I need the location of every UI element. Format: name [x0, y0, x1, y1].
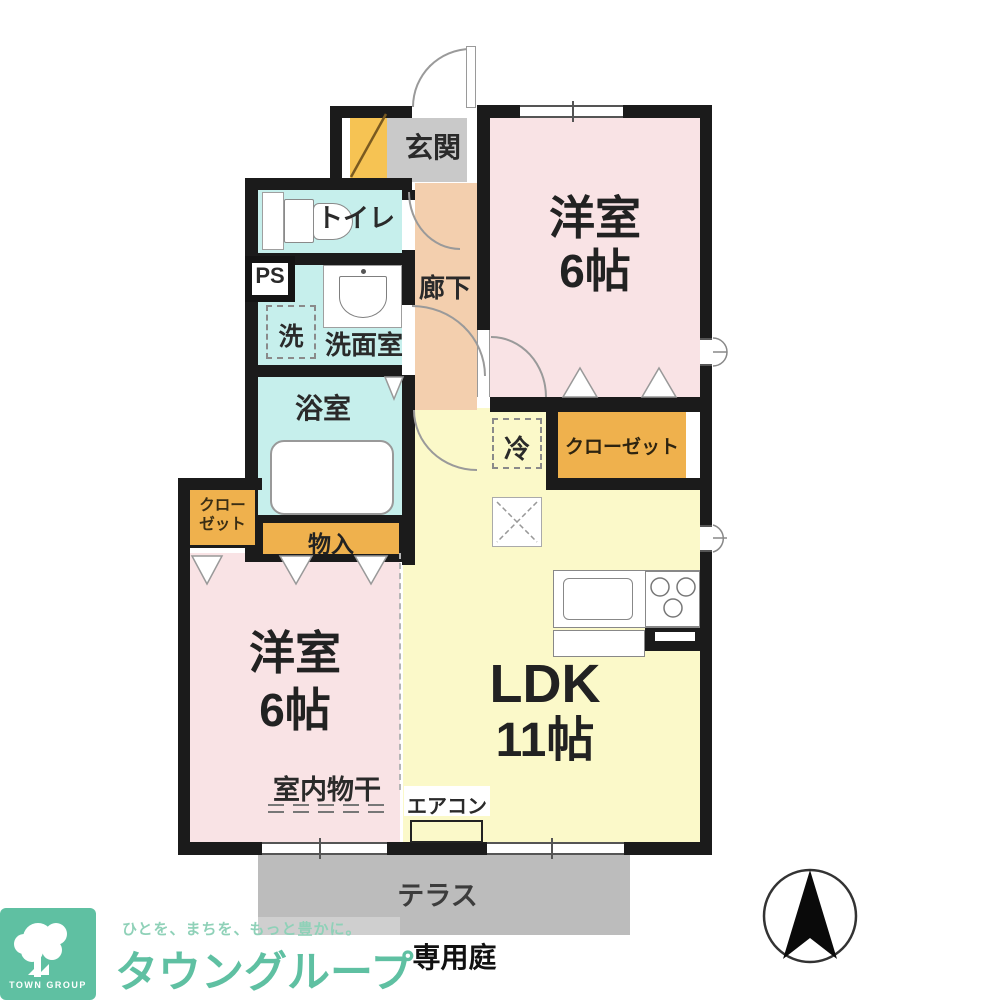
room-tr-label: 洋室 6帖 — [495, 192, 695, 298]
wall — [245, 178, 412, 190]
ldk-label: LDK 11帖 — [430, 655, 660, 769]
room-divider-dashed — [399, 553, 401, 790]
vent-window — [700, 525, 712, 552]
vanity-faucet-dot — [361, 269, 366, 274]
aircon-label: エアコン — [404, 790, 490, 819]
aircon-unit — [410, 820, 483, 843]
logo-square-label: TOWN GROUP — [0, 980, 96, 990]
toilet-tank — [284, 199, 314, 243]
storage-label: 物入 — [263, 525, 399, 559]
wall — [700, 552, 712, 855]
toilet-label: トイレ — [312, 198, 400, 235]
room-tr-size: 6帖 — [495, 244, 695, 298]
vanity-bowl — [339, 276, 387, 318]
window — [262, 842, 387, 855]
ps-label: PS — [245, 263, 295, 289]
wall — [624, 842, 712, 855]
compass-circle — [764, 870, 856, 962]
closet-right-gap — [686, 412, 700, 478]
wall — [700, 366, 712, 525]
wall — [700, 105, 712, 338]
window — [487, 842, 624, 855]
bath-label: 浴室 — [283, 387, 363, 427]
ldk-name: LDK — [430, 655, 660, 713]
genkan-label: 玄関 — [393, 126, 473, 166]
room-bl-size: 6帖 — [195, 681, 395, 739]
room-bl-label: 洋室 6帖 — [195, 625, 395, 739]
terrace-label: テラス — [380, 874, 495, 913]
window-tick — [572, 101, 574, 122]
room-bl-name: 洋室 — [195, 625, 395, 681]
floor-plan: PS 洗 冷 エアコン — [0, 0, 1000, 1000]
ldk-size: 11帖 — [430, 713, 660, 769]
vent-window — [700, 338, 712, 366]
kitchen-sink — [563, 578, 633, 620]
kitchen-counter-front — [553, 630, 645, 657]
wall — [255, 365, 402, 377]
bathtub — [270, 440, 394, 515]
fridge-label: 冷 — [492, 429, 542, 466]
wall — [178, 478, 262, 490]
kitchen-stove — [645, 571, 700, 627]
tree-icon — [14, 923, 67, 977]
wall — [178, 478, 190, 855]
wall — [178, 842, 262, 855]
vent-fan-icon — [713, 338, 727, 366]
compass-north-arrow — [783, 870, 837, 959]
washer-label: 洗 — [266, 317, 316, 353]
window-tick — [551, 838, 553, 859]
wall — [546, 478, 712, 490]
shoe-cabinet — [350, 113, 387, 178]
logo-tagline: ひとを、まちを、もっと豊かに。 — [122, 918, 402, 939]
closet-left-label: クロー ゼット — [190, 496, 255, 534]
entrance-door-arc — [412, 48, 471, 107]
wall — [623, 105, 712, 118]
wall — [490, 397, 712, 412]
wall — [330, 106, 412, 118]
cupboard-box — [492, 497, 542, 547]
indoor-drying-label: 室内物干 — [252, 768, 402, 807]
kitchen-wall-slit — [655, 632, 695, 641]
room-tr-name: 洋室 — [495, 192, 695, 244]
entrance-door-leaf — [466, 46, 476, 108]
logo-text: タウングループ — [115, 938, 415, 1000]
window-tick — [319, 838, 321, 859]
washroom-label: 洗面室 — [314, 325, 414, 362]
wall — [387, 842, 487, 855]
closet-right-label: クローゼット — [558, 432, 686, 459]
vent-fan-icon — [713, 525, 723, 552]
toilet-window-shelf — [262, 192, 284, 250]
corridor-label: 廊下 — [409, 268, 481, 305]
